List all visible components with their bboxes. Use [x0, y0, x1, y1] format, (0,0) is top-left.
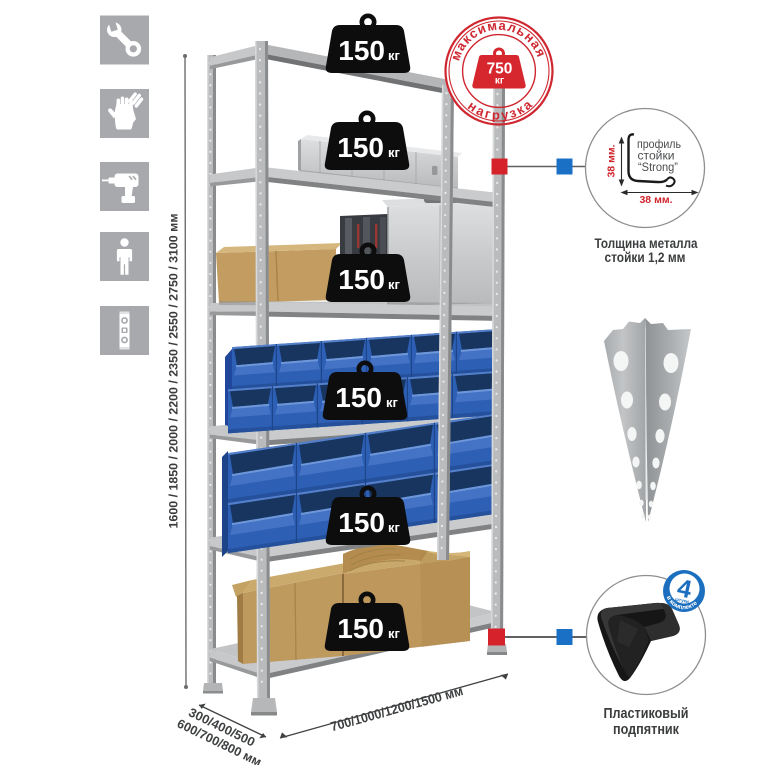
- svg-text:150: 150: [338, 507, 385, 538]
- svg-text:кг: кг: [388, 48, 401, 63]
- svg-text:Толщина металла: Толщина металла: [595, 236, 698, 251]
- svg-text:кг: кг: [388, 145, 401, 160]
- svg-text:38 мм.: 38 мм.: [606, 144, 618, 177]
- svg-text:стойки 1,2 мм: стойки 1,2 мм: [605, 250, 686, 265]
- svg-text:1600 / 1850 / 2000 / 2200 / 23: 1600 / 1850 / 2000 / 2200 / 2350 / 2550 …: [167, 214, 181, 529]
- svg-text:подпятник: подпятник: [613, 721, 679, 738]
- svg-text:кг: кг: [386, 395, 399, 410]
- svg-text:кг: кг: [495, 76, 504, 87]
- svg-text:кг: кг: [388, 520, 401, 535]
- svg-text:150: 150: [338, 35, 385, 66]
- svg-text:кг: кг: [388, 277, 401, 292]
- svg-text:150: 150: [338, 264, 385, 295]
- svg-text:38 мм.: 38 мм.: [639, 194, 672, 206]
- svg-text:150: 150: [335, 382, 382, 413]
- svg-text:“Strong”: “Strong”: [638, 160, 678, 174]
- svg-text:150: 150: [337, 613, 384, 644]
- svg-text:150: 150: [337, 132, 384, 163]
- svg-text:Пластиковый: Пластиковый: [604, 705, 689, 722]
- svg-text:кг: кг: [388, 626, 401, 641]
